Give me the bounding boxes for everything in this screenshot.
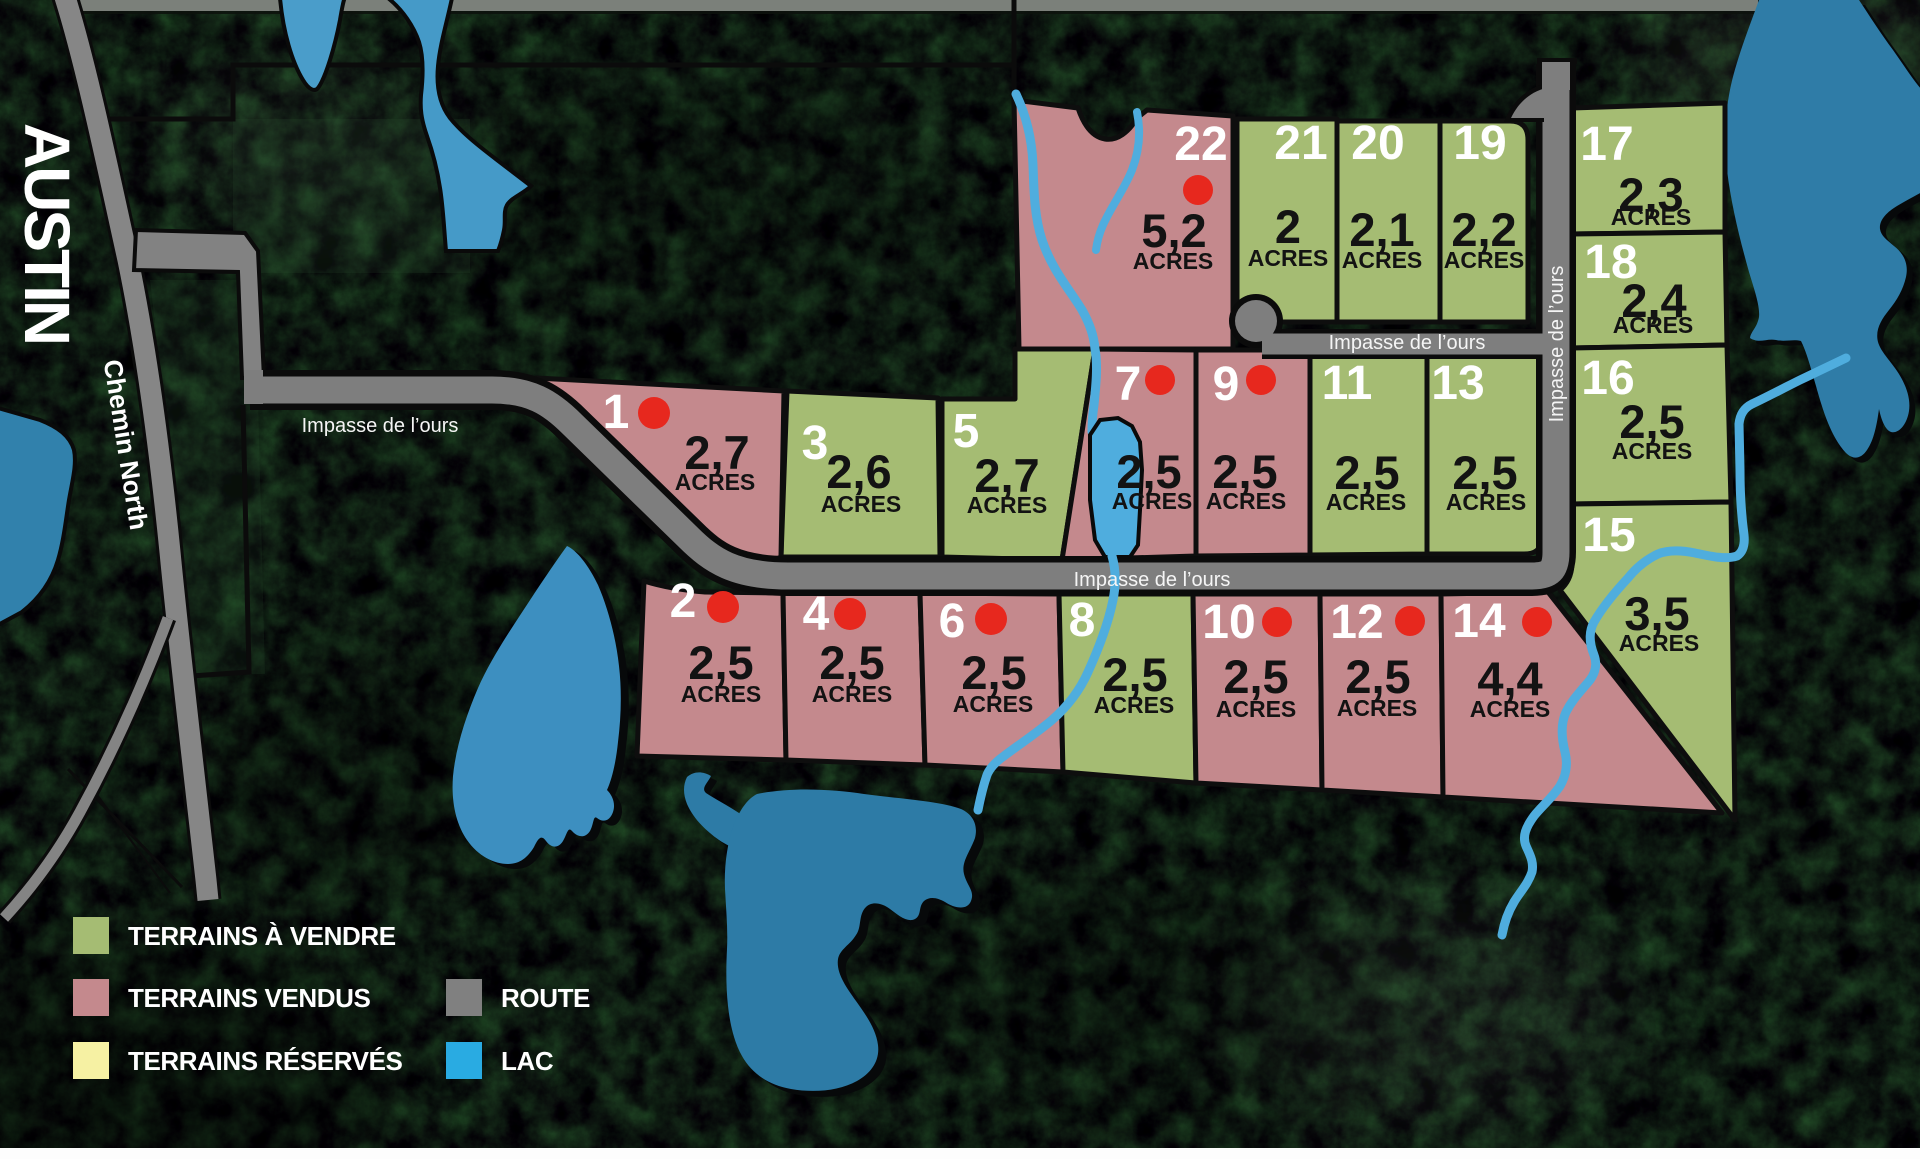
svg-text:ACRES: ACRES bbox=[812, 681, 893, 707]
svg-text:11: 11 bbox=[1322, 357, 1373, 410]
svg-text:ACRES: ACRES bbox=[1613, 312, 1694, 338]
svg-text:15: 15 bbox=[1582, 509, 1635, 562]
svg-text:ACRES: ACRES bbox=[681, 681, 762, 707]
svg-text:ACRES: ACRES bbox=[1611, 204, 1692, 230]
svg-text:TERRAINS VENDUS: TERRAINS VENDUS bbox=[128, 983, 371, 1013]
svg-text:4: 4 bbox=[803, 588, 830, 641]
svg-text:ACRES: ACRES bbox=[1446, 489, 1527, 515]
svg-text:9: 9 bbox=[1213, 358, 1240, 411]
svg-text:ACRES: ACRES bbox=[1094, 692, 1175, 718]
svg-text:2: 2 bbox=[670, 575, 697, 628]
svg-text:10: 10 bbox=[1202, 596, 1255, 649]
svg-text:6: 6 bbox=[939, 595, 966, 648]
svg-text:ACRES: ACRES bbox=[821, 491, 902, 517]
svg-text:ACRES: ACRES bbox=[675, 469, 756, 495]
svg-text:8: 8 bbox=[1069, 594, 1096, 647]
svg-text:LAC: LAC bbox=[501, 1046, 554, 1076]
svg-text:ACRES: ACRES bbox=[1216, 696, 1297, 722]
svg-text:TERRAINS RÉSERVÉS: TERRAINS RÉSERVÉS bbox=[128, 1046, 403, 1076]
svg-text:12: 12 bbox=[1330, 596, 1383, 649]
svg-text:AUSTIN: AUSTIN bbox=[11, 123, 83, 343]
svg-text:ROUTE: ROUTE bbox=[501, 983, 590, 1013]
svg-text:14: 14 bbox=[1452, 595, 1506, 648]
svg-text:ACRES: ACRES bbox=[1326, 489, 1407, 515]
svg-text:7: 7 bbox=[1115, 358, 1142, 411]
svg-text:ACRES: ACRES bbox=[1112, 488, 1193, 514]
svg-text:TERRAINS À VENDRE: TERRAINS À VENDRE bbox=[128, 921, 396, 951]
svg-text:ACRES: ACRES bbox=[1470, 696, 1551, 722]
svg-text:ACRES: ACRES bbox=[1133, 248, 1214, 274]
svg-text:17: 17 bbox=[1580, 118, 1633, 171]
svg-text:ACRES: ACRES bbox=[1248, 245, 1329, 271]
svg-text:ACRES: ACRES bbox=[967, 492, 1048, 518]
svg-text:Impasse de l’ours: Impasse de l’ours bbox=[302, 415, 459, 437]
svg-text:20: 20 bbox=[1351, 117, 1404, 170]
svg-text:ACRES: ACRES bbox=[1444, 247, 1525, 273]
svg-text:1: 1 bbox=[603, 386, 630, 439]
svg-text:ACRES: ACRES bbox=[1206, 488, 1287, 514]
svg-text:ACRES: ACRES bbox=[953, 691, 1034, 717]
svg-text:ACRES: ACRES bbox=[1337, 695, 1418, 721]
svg-text:ACRES: ACRES bbox=[1342, 247, 1423, 273]
svg-text:3: 3 bbox=[802, 417, 829, 470]
svg-text:22: 22 bbox=[1174, 118, 1227, 171]
svg-text:21: 21 bbox=[1274, 117, 1327, 170]
svg-text:ACRES: ACRES bbox=[1612, 438, 1693, 464]
svg-text:Impasse de l’ours: Impasse de l’ours bbox=[1074, 569, 1231, 591]
svg-text:Impasse de l’ours: Impasse de l’ours bbox=[1546, 266, 1568, 423]
svg-text:19: 19 bbox=[1453, 117, 1506, 170]
svg-text:13: 13 bbox=[1431, 357, 1484, 410]
svg-text:ACRES: ACRES bbox=[1619, 630, 1700, 656]
svg-text:Impasse de l’ours: Impasse de l’ours bbox=[1329, 332, 1486, 354]
